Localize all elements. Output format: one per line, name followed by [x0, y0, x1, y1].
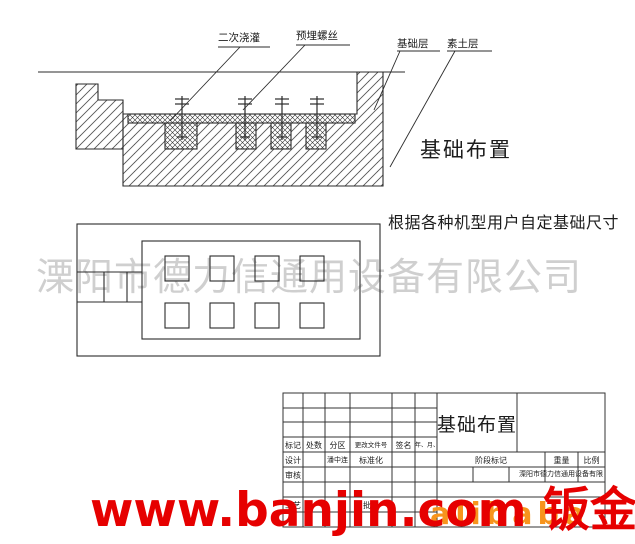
section-view — [38, 45, 492, 186]
tb-header-mark: 标记 — [283, 439, 303, 452]
tb-header-change-doc: 更改文件号 — [350, 439, 392, 452]
drawing-sheet: 溧阳市德力信通用设备有限公司 — [0, 0, 635, 544]
foundation-note: 根据各种机型用户自定基础尺寸 — [388, 209, 619, 233]
callout-foundation-layer: 基础层 — [397, 36, 429, 51]
section-caption: 基础布置 — [420, 134, 512, 164]
plan-view — [77, 224, 380, 356]
tb-header-zone: 分区 — [325, 439, 350, 452]
tb-designer-name: 潘中连 — [325, 454, 350, 467]
tb-header-date: 年、月、日 — [415, 439, 437, 452]
banjin-watermark: www.banjin.com 钣金 — [90, 471, 635, 540]
tb-designer-label: 设计 — [283, 454, 303, 467]
tb-drawing-title: 基础布置 — [437, 410, 517, 437]
callout-secondary-grout: 二次浇灌 — [218, 30, 260, 45]
callout-embedded-bolts: 预埋螺丝 — [296, 28, 338, 43]
callout-soil-layer: 素土层 — [447, 36, 479, 51]
tb-stage-label: 阶段标记 — [437, 454, 545, 467]
tb-scale-label: 比例 — [578, 454, 605, 467]
tb-header-count: 处数 — [303, 439, 325, 452]
tb-weight-label: 重量 — [545, 454, 578, 467]
tb-standardization-label: 标准化 — [350, 454, 392, 467]
tb-header-signature: 签名 — [392, 439, 415, 452]
